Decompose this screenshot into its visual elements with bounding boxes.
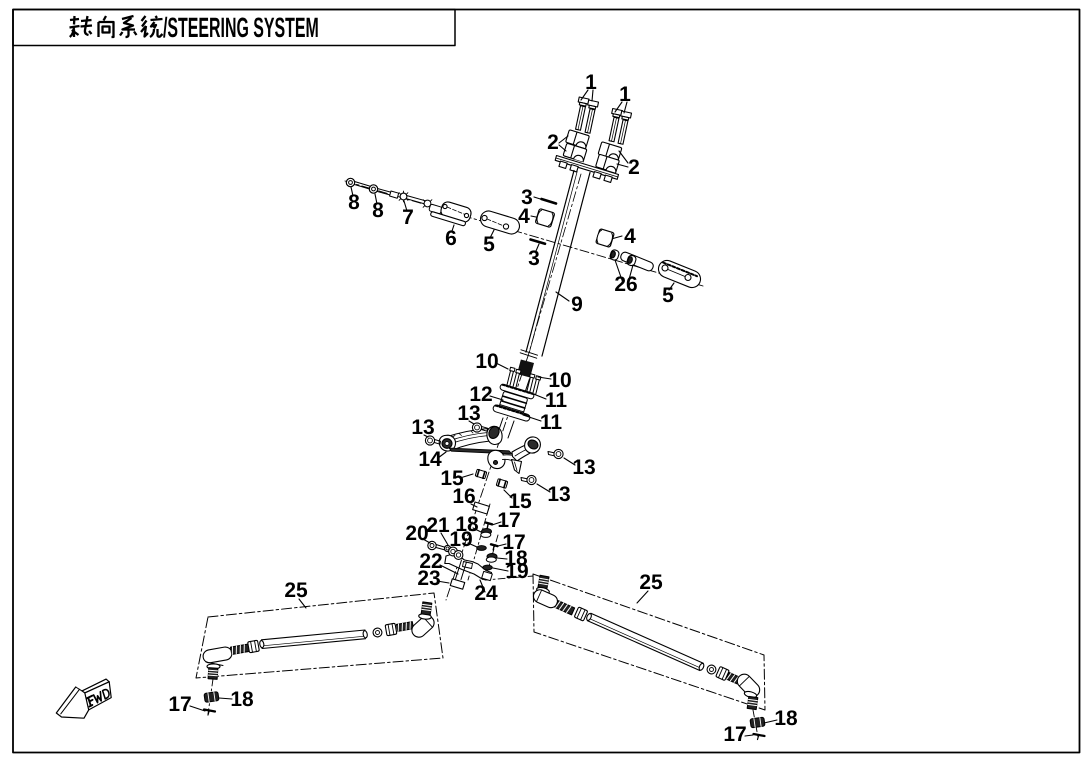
svg-text:3: 3 (528, 247, 540, 270)
svg-text:26: 26 (614, 273, 637, 296)
svg-text:5: 5 (662, 284, 674, 307)
svg-text:5: 5 (483, 233, 495, 256)
svg-text:6: 6 (445, 227, 457, 250)
svg-text:4: 4 (624, 225, 636, 248)
svg-text:8: 8 (348, 191, 360, 214)
svg-text:13: 13 (411, 416, 434, 439)
svg-text:17: 17 (497, 509, 520, 532)
svg-text:4: 4 (518, 205, 530, 228)
svg-text:24: 24 (474, 582, 498, 605)
svg-text:25: 25 (284, 579, 308, 602)
svg-text:18: 18 (774, 707, 798, 730)
svg-text:/STEERING SYSTEM: /STEERING SYSTEM (163, 12, 319, 43)
svg-text:19: 19 (505, 560, 528, 583)
svg-text:21: 21 (426, 514, 450, 537)
svg-text:2: 2 (547, 131, 559, 154)
svg-text:23: 23 (417, 567, 440, 590)
svg-text:17: 17 (168, 693, 191, 716)
svg-text:19: 19 (449, 528, 472, 551)
svg-text:10: 10 (475, 350, 498, 373)
svg-text:17: 17 (723, 723, 746, 746)
svg-text:2: 2 (628, 156, 640, 179)
svg-text:7: 7 (402, 206, 414, 229)
svg-text:8: 8 (372, 199, 384, 222)
svg-text:20: 20 (405, 522, 428, 545)
svg-text:25: 25 (639, 571, 663, 594)
svg-text:14: 14 (418, 448, 442, 471)
svg-text:9: 9 (571, 293, 583, 316)
svg-text:11: 11 (545, 389, 568, 412)
svg-text:13: 13 (572, 456, 595, 479)
svg-text:13: 13 (547, 483, 570, 506)
svg-text:11: 11 (540, 411, 563, 434)
svg-text:18: 18 (230, 688, 254, 711)
